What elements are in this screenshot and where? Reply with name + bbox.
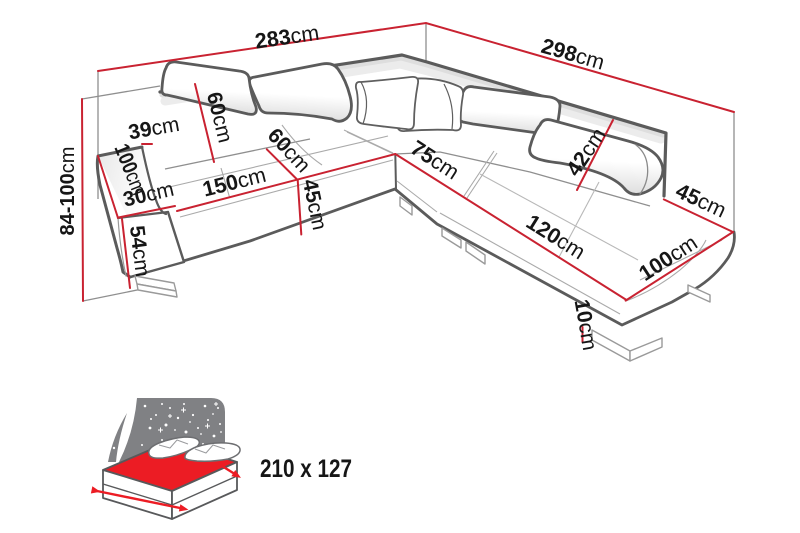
- svg-text:298cm: 298cm: [539, 34, 608, 75]
- svg-text:283cm: 283cm: [253, 21, 320, 54]
- svg-text:210 x 127: 210 x 127: [260, 455, 352, 483]
- svg-text:84-100cm: 84-100cm: [57, 147, 79, 236]
